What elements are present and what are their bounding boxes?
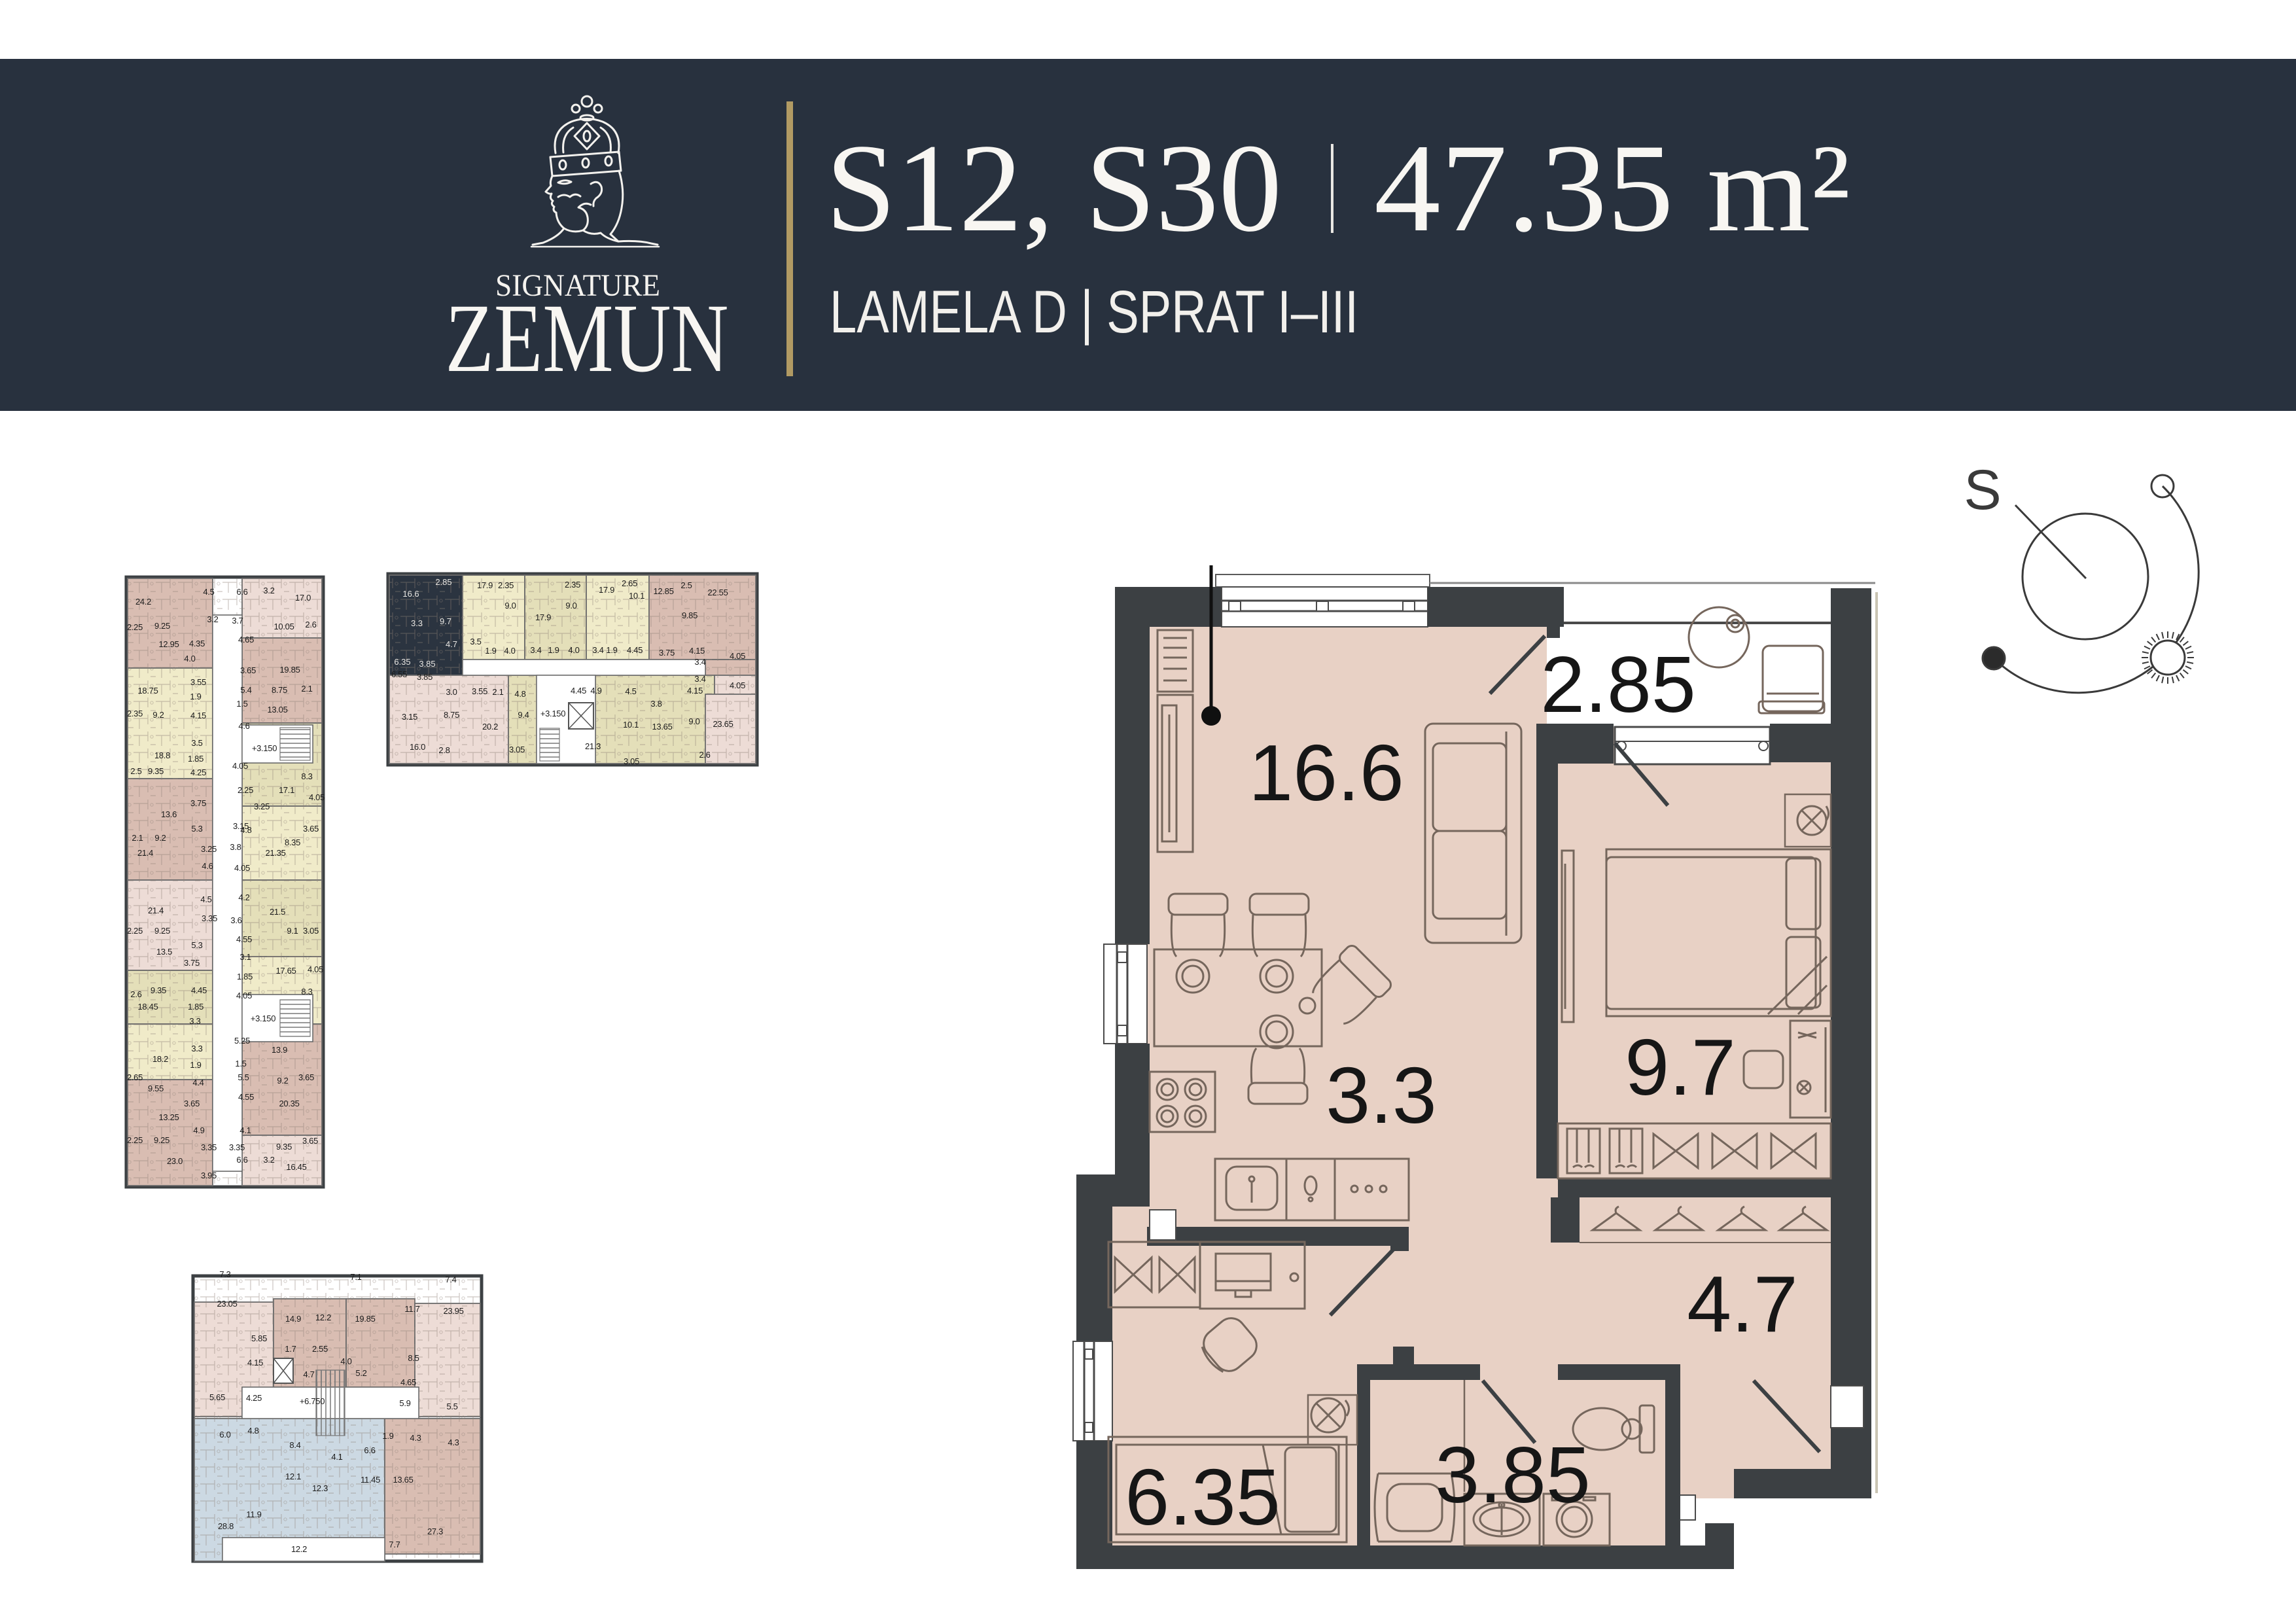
svg-text:5.9: 5.9 [399,1398,410,1408]
svg-text:4.65: 4.65 [238,635,254,644]
svg-text:6.6: 6.6 [236,1155,247,1165]
svg-text:9.25: 9.25 [154,621,170,631]
svg-text:5.4: 5.4 [240,685,251,695]
svg-text:4.5: 4.5 [625,686,636,696]
svg-text:10.1: 10.1 [629,591,645,601]
svg-text:4.65: 4.65 [400,1377,416,1387]
svg-text:10.1: 10.1 [623,720,639,730]
svg-text:3.3: 3.3 [1326,1051,1437,1140]
svg-text:3.85: 3.85 [1435,1430,1590,1519]
svg-text:4.7: 4.7 [1687,1260,1798,1349]
svg-text:4.05: 4.05 [232,761,248,771]
svg-text:3.4: 3.4 [592,645,603,655]
svg-text:20.2: 20.2 [482,722,498,732]
svg-text:6.35: 6.35 [1125,1453,1280,1542]
svg-text:17.0: 17.0 [295,593,311,603]
svg-text:5.3: 5.3 [191,824,202,834]
svg-text:1.5: 1.5 [236,699,247,709]
svg-text:2.1: 2.1 [132,833,143,843]
svg-text:1.9: 1.9 [382,1431,393,1441]
svg-text:28.8: 28.8 [218,1521,234,1531]
svg-text:19.85: 19.85 [279,665,300,675]
svg-text:3.25: 3.25 [254,802,270,811]
svg-text:4.15: 4.15 [247,1358,263,1368]
svg-text:3.75: 3.75 [659,648,675,658]
svg-text:4.2: 4.2 [238,892,249,902]
svg-text:20.35: 20.35 [279,1099,299,1108]
svg-text:3.85: 3.85 [419,659,435,669]
svg-text:13.65: 13.65 [393,1475,413,1485]
svg-text:3.8: 3.8 [650,699,662,709]
svg-text:3.65: 3.65 [303,824,319,834]
svg-text:3.65: 3.65 [298,1072,314,1082]
svg-text:9.7: 9.7 [440,616,451,626]
svg-text:9.2: 9.2 [154,833,166,843]
svg-text:23.95: 23.95 [443,1306,463,1316]
svg-text:2.65: 2.65 [622,578,637,588]
svg-text:8.4: 8.4 [289,1440,300,1450]
svg-text:4.0: 4.0 [568,645,579,655]
svg-text:3.5: 3.5 [191,738,202,748]
svg-text:4.1: 4.1 [239,1125,251,1135]
svg-text:17.65: 17.65 [275,966,296,976]
svg-text:1.9: 1.9 [606,645,617,655]
svg-text:6.6: 6.6 [364,1445,375,1455]
svg-text:16.6: 16.6 [402,589,419,599]
svg-text:9.2: 9.2 [152,710,164,720]
svg-text:LAMELA D | SPRAT I–III: LAMELA D | SPRAT I–III [830,279,1358,345]
svg-text:3.85: 3.85 [417,672,433,682]
svg-text:13.65: 13.65 [652,722,672,732]
svg-text:3.4: 3.4 [530,645,541,655]
svg-text:13.9: 13.9 [272,1045,287,1055]
svg-text:3.05: 3.05 [303,926,319,936]
svg-text:12.85: 12.85 [653,586,673,596]
svg-text:3.65: 3.65 [302,1136,318,1146]
svg-text:3.3: 3.3 [189,1016,200,1026]
svg-text:16.0: 16.0 [410,742,425,752]
svg-text:1.9: 1.9 [485,646,496,656]
svg-text:2.55: 2.55 [312,1344,328,1354]
svg-text:27.3: 27.3 [427,1527,443,1536]
svg-text:7.1: 7.1 [350,1272,361,1282]
svg-text:9.35: 9.35 [150,985,166,995]
svg-text:9.2: 9.2 [277,1076,288,1086]
svg-text:21.4: 21.4 [148,906,164,915]
svg-text:9.85: 9.85 [682,610,698,620]
svg-text:4.8: 4.8 [247,1426,258,1436]
svg-text:2.1: 2.1 [492,687,503,697]
svg-text:4.9: 4.9 [193,1125,204,1135]
svg-text:5.85: 5.85 [251,1333,267,1343]
svg-text:+3.150: +3.150 [252,743,277,753]
svg-text:4.25: 4.25 [190,768,206,777]
svg-text:8.75: 8.75 [272,685,287,695]
svg-text:9.55: 9.55 [148,1084,164,1093]
svg-text:4.05: 4.05 [234,863,250,873]
svg-text:17.9: 17.9 [535,612,551,622]
svg-text:13.5: 13.5 [156,947,172,957]
svg-text:18.75: 18.75 [137,686,158,696]
svg-text:16.6: 16.6 [1248,728,1404,817]
svg-text:9.0: 9.0 [504,601,516,610]
svg-text:23.05: 23.05 [217,1299,237,1309]
svg-text:4.05: 4.05 [309,792,325,802]
svg-text:3.75: 3.75 [190,798,206,808]
svg-text:2.35: 2.35 [565,580,580,590]
svg-text:3.2: 3.2 [263,1155,274,1165]
svg-text:1.5: 1.5 [235,1059,246,1068]
svg-text:3.5: 3.5 [470,637,481,646]
svg-text:4.6: 4.6 [238,721,249,731]
svg-text:9.1: 9.1 [287,926,298,936]
svg-text:4.7: 4.7 [303,1369,314,1379]
svg-text:11.7: 11.7 [404,1304,419,1314]
svg-text:4.35: 4.35 [189,639,205,648]
svg-text:3.4: 3.4 [694,674,705,684]
svg-text:3.6: 3.6 [230,915,241,925]
svg-text:5.5: 5.5 [238,1072,249,1082]
svg-text:4.55: 4.55 [238,1092,254,1102]
svg-text:3.4: 3.4 [694,657,705,667]
svg-text:4.3: 4.3 [410,1433,421,1443]
svg-text:4.45: 4.45 [191,985,207,995]
svg-text:24.2: 24.2 [135,597,151,607]
svg-text:21.3: 21.3 [585,741,601,751]
svg-text:4.3: 4.3 [448,1438,459,1447]
svg-text:13.25: 13.25 [158,1112,179,1122]
svg-text:3.2: 3.2 [207,614,218,624]
svg-text:3.2: 3.2 [263,586,274,595]
svg-text:6.55: 6.55 [391,669,407,679]
svg-text:3.95: 3.95 [201,1171,217,1180]
svg-text:6.35: 6.35 [394,657,410,667]
svg-text:3.05: 3.05 [624,756,639,766]
svg-text:5.25: 5.25 [234,1036,250,1046]
svg-text:4.8: 4.8 [514,689,525,699]
svg-text:17.9: 17.9 [599,585,614,595]
svg-text:1.9: 1.9 [548,645,559,655]
svg-text:2.25: 2.25 [127,1135,143,1145]
svg-text:+6.750: +6.750 [300,1396,325,1406]
svg-text:4.7: 4.7 [446,639,457,649]
svg-text:12.95: 12.95 [158,639,179,649]
svg-text:2.65: 2.65 [127,1072,143,1082]
svg-text:23.0: 23.0 [167,1156,183,1166]
svg-text:3.35: 3.35 [229,1142,245,1152]
svg-text:4.0: 4.0 [184,654,195,663]
svg-text:13.05: 13.05 [267,705,287,715]
svg-text:11.9: 11.9 [246,1509,261,1519]
svg-text:18.45: 18.45 [137,1002,158,1012]
svg-text:4.05: 4.05 [236,991,252,1000]
svg-text:8.5: 8.5 [408,1353,419,1363]
svg-text:8.3: 8.3 [301,987,312,997]
svg-text:9.35: 9.35 [148,766,164,776]
svg-text:3.25: 3.25 [201,844,217,854]
svg-text:4.8: 4.8 [240,825,251,835]
svg-text:1.9: 1.9 [190,692,201,701]
svg-text:4.5: 4.5 [200,894,211,904]
svg-text:12.1: 12.1 [285,1472,301,1481]
svg-text:3.8: 3.8 [230,842,241,852]
svg-text:2.25: 2.25 [238,785,253,795]
svg-text:2.85: 2.85 [1540,640,1695,729]
svg-text:2.5: 2.5 [130,766,141,776]
svg-text:3.55: 3.55 [190,677,206,687]
svg-text:2.85: 2.85 [435,577,451,587]
svg-text:4.9: 4.9 [590,686,601,696]
svg-text:5.3: 5.3 [191,940,202,950]
svg-text:5.2: 5.2 [355,1368,366,1378]
svg-text:2.6: 2.6 [699,750,710,760]
svg-text:12.2: 12.2 [291,1544,307,1554]
svg-text:7.4: 7.4 [445,1275,456,1284]
svg-text:4.45: 4.45 [627,645,643,655]
svg-text:4.15: 4.15 [687,686,703,696]
svg-text:12.2: 12.2 [315,1313,331,1322]
svg-text:2.35: 2.35 [498,580,514,590]
svg-text:9.25: 9.25 [154,1135,169,1145]
svg-text:2.6: 2.6 [130,989,141,999]
svg-text:4.1: 4.1 [331,1452,342,1462]
svg-text:3.15: 3.15 [402,712,417,722]
svg-text:10.05: 10.05 [274,622,294,631]
svg-text:8.75: 8.75 [444,710,459,720]
svg-text:+3.150: +3.150 [540,709,565,718]
svg-text:16.45: 16.45 [286,1162,306,1172]
svg-text:3.05: 3.05 [509,745,525,754]
svg-text:23.65: 23.65 [713,719,733,729]
svg-text:4.15: 4.15 [190,711,206,720]
svg-text:3.0: 3.0 [446,687,457,697]
svg-text:9.35: 9.35 [276,1142,292,1152]
svg-text:1.7: 1.7 [285,1344,296,1354]
svg-text:3.35: 3.35 [202,913,217,923]
svg-text:17.9: 17.9 [477,580,493,590]
svg-text:S: S [1964,459,2001,521]
svg-text:2.8: 2.8 [438,745,450,755]
svg-text:4.45: 4.45 [571,686,586,696]
svg-text:1.9: 1.9 [190,1060,201,1070]
svg-text:1.85: 1.85 [237,972,253,981]
svg-text:6.6: 6.6 [236,587,247,597]
svg-text:3.35: 3.35 [201,1142,217,1152]
svg-text:7.7: 7.7 [389,1540,400,1549]
svg-text:13.6: 13.6 [161,809,177,819]
svg-text:14.9: 14.9 [285,1314,301,1324]
svg-text:4.05: 4.05 [730,680,745,690]
svg-text:4.5: 4.5 [203,587,214,597]
svg-text:3.3: 3.3 [411,618,423,628]
svg-text:19.85: 19.85 [355,1314,375,1324]
svg-text:9.0: 9.0 [688,716,699,726]
svg-text:8.3: 8.3 [301,771,312,781]
svg-text:21.4: 21.4 [137,848,153,858]
svg-text:47.35 m²: 47.35 m² [1374,118,1850,258]
svg-text:4.0: 4.0 [504,646,515,656]
svg-text:4.6: 4.6 [202,861,213,871]
svg-text:+3.150: +3.150 [251,1014,275,1023]
svg-text:3.75: 3.75 [184,958,200,968]
svg-text:3.55: 3.55 [472,686,487,696]
svg-text:9.25: 9.25 [154,926,170,936]
svg-text:21.35: 21.35 [265,848,285,858]
svg-text:5.5: 5.5 [446,1402,457,1411]
svg-text:S12, S30: S12, S30 [826,118,1282,258]
svg-text:1.85: 1.85 [188,754,203,764]
svg-text:4.55: 4.55 [236,934,252,944]
svg-text:2.5: 2.5 [680,580,692,590]
svg-text:3.65: 3.65 [240,665,256,675]
svg-text:12.3: 12.3 [312,1483,328,1493]
svg-text:4.05: 4.05 [730,651,745,661]
svg-text:9.0: 9.0 [565,601,576,610]
svg-text:3.3: 3.3 [191,1044,202,1053]
svg-text:4.0: 4.0 [340,1356,351,1366]
svg-text:9.7: 9.7 [1625,1023,1736,1112]
svg-text:4.4: 4.4 [192,1078,203,1087]
svg-text:8.35: 8.35 [285,838,300,847]
svg-text:2.25: 2.25 [127,926,143,936]
svg-text:2.25: 2.25 [127,622,143,632]
svg-text:3.1: 3.1 [239,952,251,962]
svg-text:3.65: 3.65 [184,1099,200,1108]
svg-text:ZEMUN: ZEMUN [446,284,729,393]
svg-text:2.35: 2.35 [127,709,143,718]
svg-text:5.65: 5.65 [209,1392,225,1402]
svg-text:3.7: 3.7 [232,616,243,626]
svg-text:9.4: 9.4 [518,710,529,720]
svg-text:18.8: 18.8 [154,750,170,760]
svg-text:7.3: 7.3 [219,1269,230,1279]
svg-text:1.85: 1.85 [188,1002,203,1012]
svg-text:4.15: 4.15 [689,646,705,656]
svg-text:4.25: 4.25 [246,1393,262,1403]
svg-text:18.2: 18.2 [152,1054,168,1064]
svg-text:11.45: 11.45 [361,1475,380,1485]
svg-text:17.1: 17.1 [279,785,294,795]
svg-text:2.6: 2.6 [305,620,316,629]
svg-text:6.0: 6.0 [219,1430,230,1439]
svg-text:2.1: 2.1 [301,684,312,694]
svg-text:21.5: 21.5 [270,907,285,917]
svg-text:22.55: 22.55 [707,588,728,597]
svg-text:4.05: 4.05 [308,964,323,974]
